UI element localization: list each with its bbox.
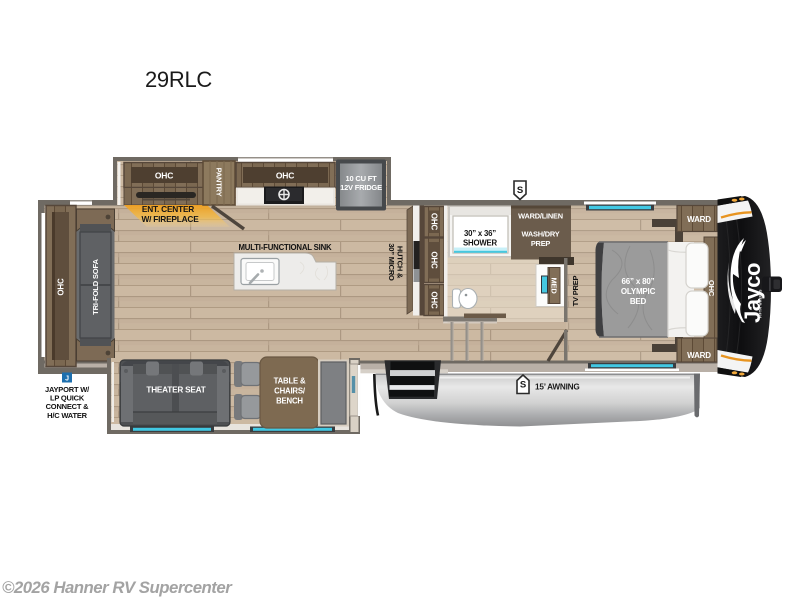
svg-text:MULTI-FUNCTIONAL SINK: MULTI-FUNCTIONAL SINK xyxy=(239,243,333,252)
svg-text:S: S xyxy=(520,380,526,391)
svg-text:OLYMPIC: OLYMPIC xyxy=(621,287,656,296)
svg-text:CHAIRS/: CHAIRS/ xyxy=(274,387,306,396)
svg-text:30” x 36”: 30” x 36” xyxy=(464,229,496,238)
svg-text:OHC: OHC xyxy=(430,291,439,309)
svg-text:OHC: OHC xyxy=(155,171,173,181)
svg-text:OHC: OHC xyxy=(57,278,66,296)
svg-text:FIFTH WHEELS: FIFTH WHEELS xyxy=(759,289,763,318)
svg-text:S: S xyxy=(517,185,523,196)
svg-text:ENT. CENTER: ENT. CENTER xyxy=(142,204,194,214)
svg-text:OHC: OHC xyxy=(430,213,439,231)
svg-text:TRI-FOLD SOFA: TRI-FOLD SOFA xyxy=(91,258,100,314)
svg-text:TV PREP: TV PREP xyxy=(571,275,580,306)
svg-text:OHC: OHC xyxy=(276,171,294,181)
svg-text:PREP: PREP xyxy=(531,239,551,248)
svg-text:W/ FIREPLACE: W/ FIREPLACE xyxy=(141,214,199,224)
svg-text:BENCH: BENCH xyxy=(276,397,303,406)
svg-text:WARD/LINEN: WARD/LINEN xyxy=(518,212,563,221)
svg-text:BED: BED xyxy=(630,297,647,306)
svg-text:THEATER SEAT: THEATER SEAT xyxy=(146,386,205,395)
svg-text:12V FRIDGE: 12V FRIDGE xyxy=(340,183,382,192)
svg-text:WASH/DRY: WASH/DRY xyxy=(522,230,560,239)
svg-text:WARD: WARD xyxy=(687,351,711,360)
svg-text:10 CU FT: 10 CU FT xyxy=(346,174,378,183)
svg-text:PANTRY: PANTRY xyxy=(215,168,224,197)
svg-text:OHC: OHC xyxy=(430,251,439,269)
svg-text:30” MICRO: 30” MICRO xyxy=(387,243,396,281)
svg-text:©2026 Hanner RV Supercenter: ©2026 Hanner RV Supercenter xyxy=(2,578,233,597)
svg-text:29RLC: 29RLC xyxy=(145,67,212,92)
svg-text:66” x 80”: 66” x 80” xyxy=(622,277,655,286)
svg-text:H/C WATER: H/C WATER xyxy=(47,411,88,420)
svg-text:MED: MED xyxy=(550,277,559,294)
svg-text:TABLE &: TABLE & xyxy=(274,377,306,386)
svg-text:SHOWER: SHOWER xyxy=(463,239,497,248)
svg-text:15’ AWNING: 15’ AWNING xyxy=(535,383,580,392)
svg-text:WARD: WARD xyxy=(687,215,711,224)
svg-text:J: J xyxy=(65,376,69,383)
